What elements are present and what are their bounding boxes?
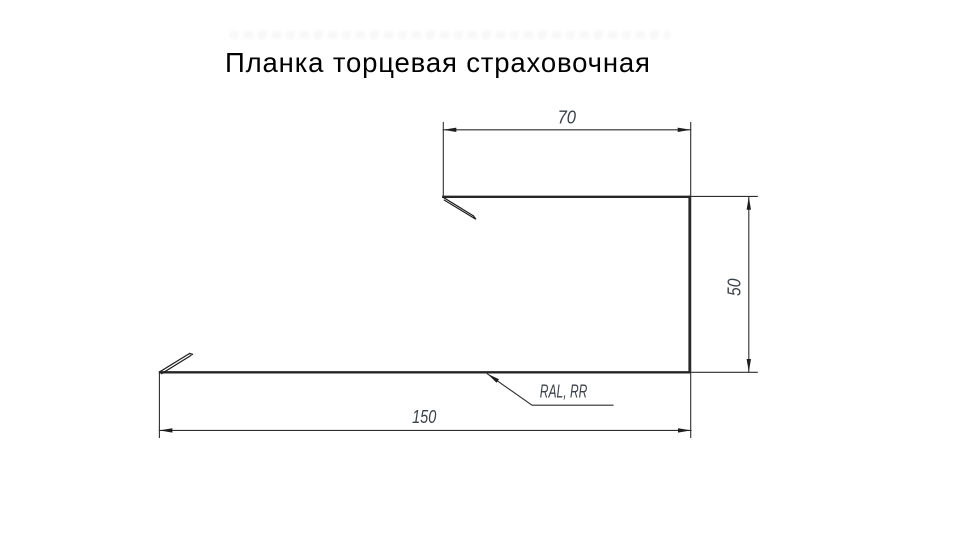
svg-text:50: 50 [724,278,745,296]
svg-text:70: 70 [558,106,577,127]
svg-text:150: 150 [412,406,437,427]
svg-text:RAL, RR: RAL, RR [540,380,588,401]
